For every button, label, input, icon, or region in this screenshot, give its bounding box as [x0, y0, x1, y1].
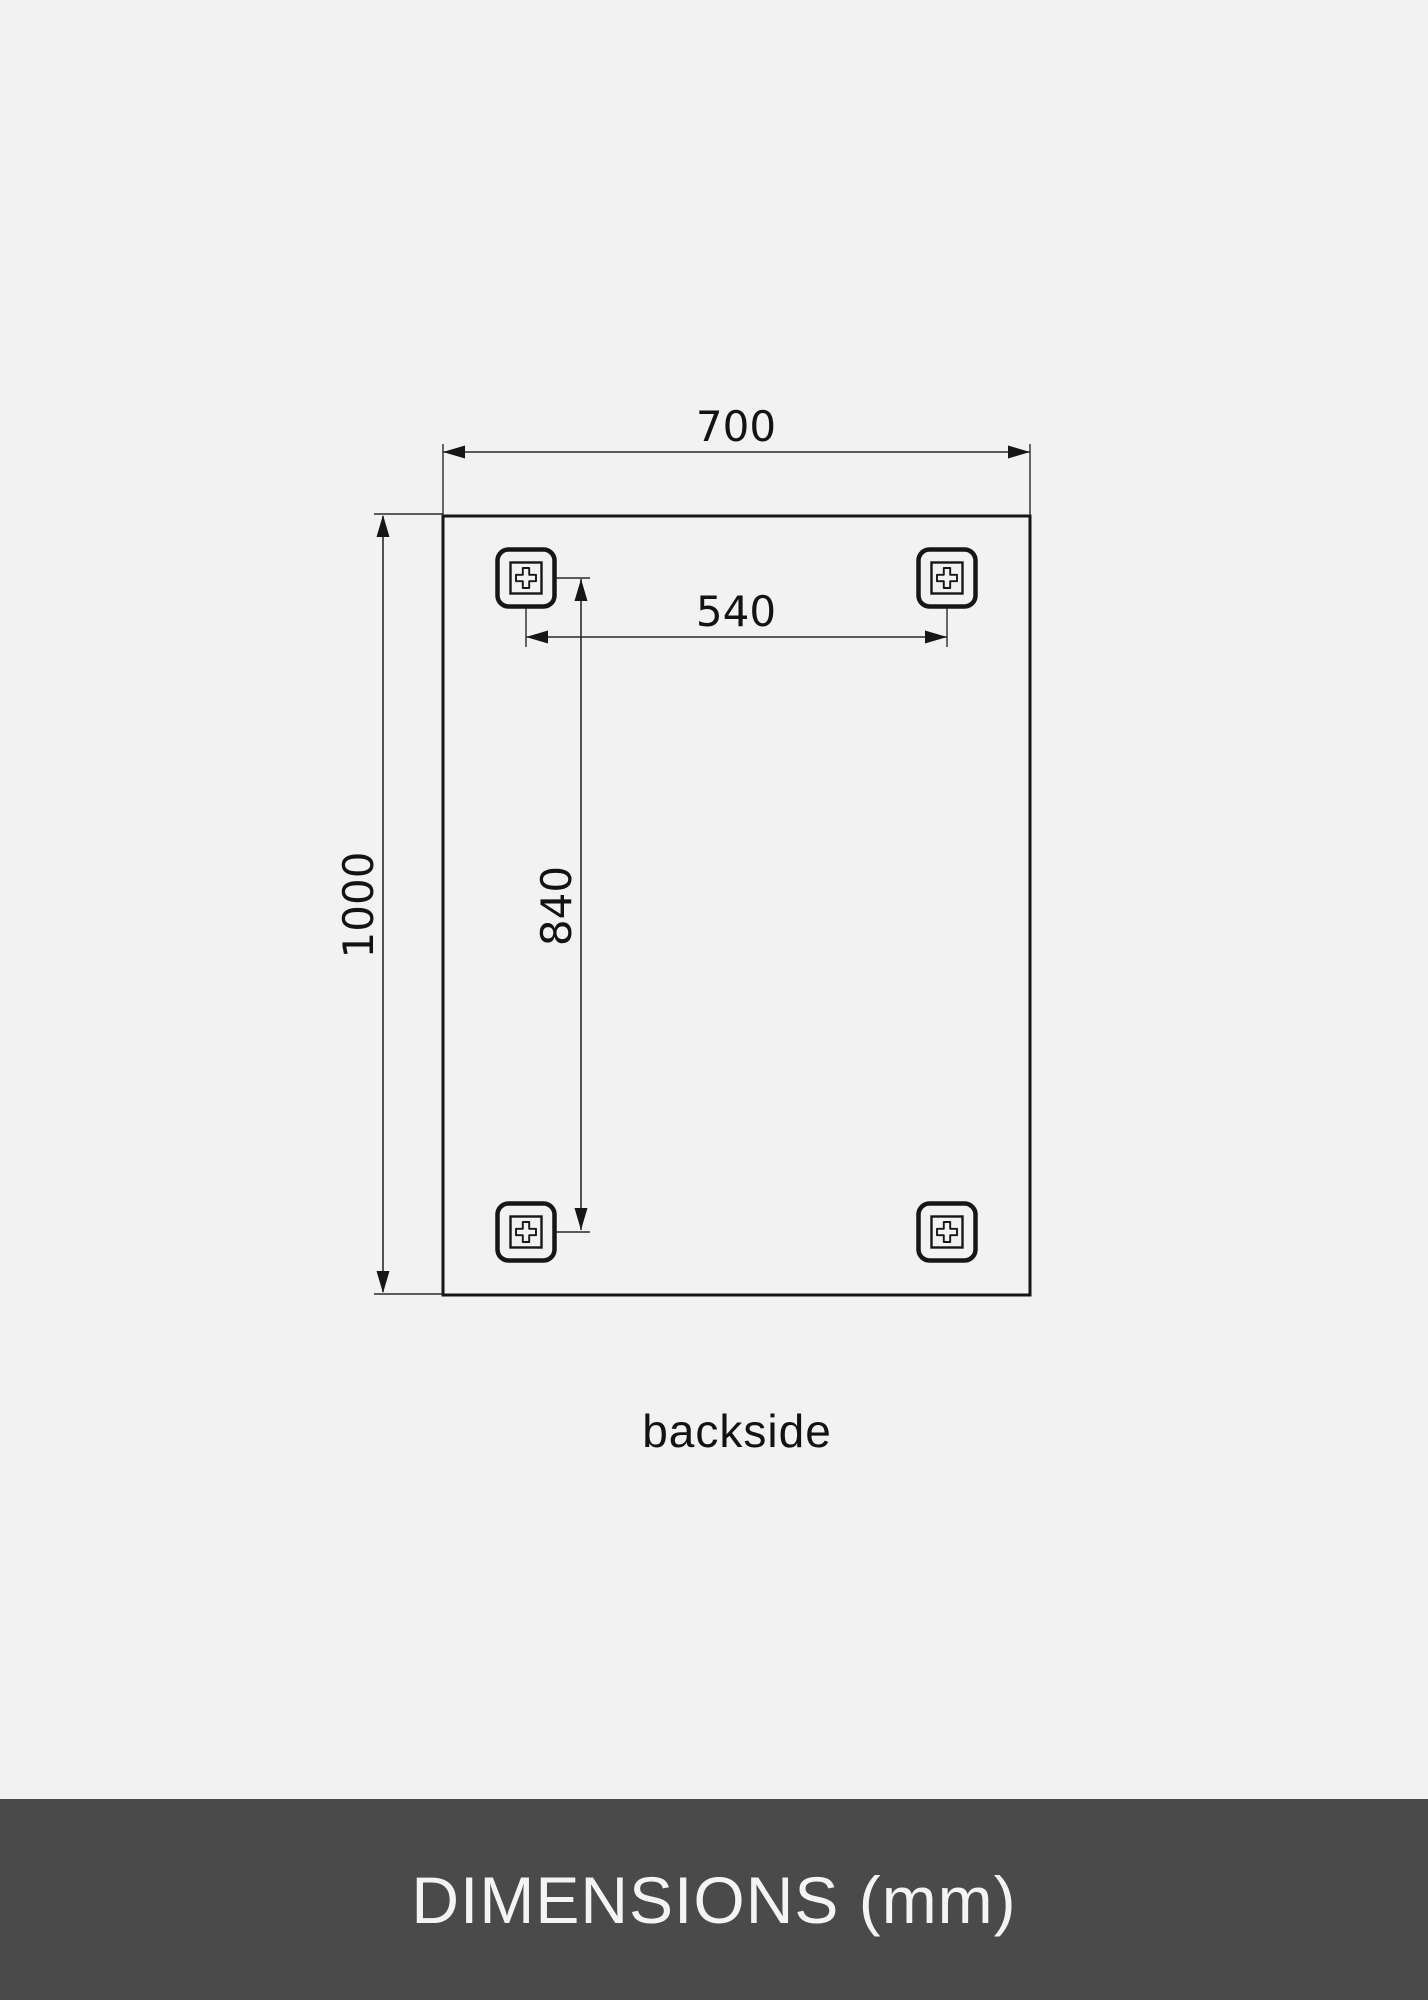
dimension-bracket-spacing-horizontal: 540 — [526, 587, 947, 647]
arrowhead-icon — [575, 1208, 588, 1230]
dimension-height: 1000 — [334, 514, 443, 1294]
footer-bar: DIMENSIONS (mm) — [0, 1799, 1428, 2000]
mounting-bracket-bottom-right — [919, 1204, 976, 1261]
footer-title: DIMENSIONS (mm) — [411, 1862, 1016, 1938]
bracket-outer-square — [919, 550, 976, 607]
bracket-outer-square — [498, 1204, 555, 1261]
mounting-bracket-bottom-left — [498, 1204, 555, 1261]
page: 700 1000 540 840 — [0, 0, 1428, 2000]
mounting-bracket-top-right — [919, 550, 976, 607]
arrowhead-icon — [925, 631, 947, 644]
arrowhead-icon — [443, 446, 465, 459]
dimension-diagram: 700 1000 540 840 — [0, 0, 1428, 1799]
width-label: 700 — [696, 402, 776, 451]
view-label: backside — [642, 1405, 832, 1457]
bracket-outer-square — [919, 1204, 976, 1261]
mounting-bracket-top-left — [498, 550, 555, 607]
dimension-bracket-spacing-vertical: 840 — [532, 578, 590, 1232]
dimension-width: 700 — [443, 402, 1030, 516]
arrowhead-icon — [526, 631, 548, 644]
arrowhead-icon — [1008, 446, 1030, 459]
bracket-outer-square — [498, 550, 555, 607]
arrowhead-icon — [575, 579, 588, 601]
height-label: 1000 — [334, 852, 383, 959]
arrowhead-icon — [377, 515, 390, 537]
bracket-spacing-horizontal-label: 540 — [696, 587, 776, 636]
arrowhead-icon — [377, 1271, 390, 1293]
bracket-spacing-vertical-label: 840 — [532, 866, 581, 946]
